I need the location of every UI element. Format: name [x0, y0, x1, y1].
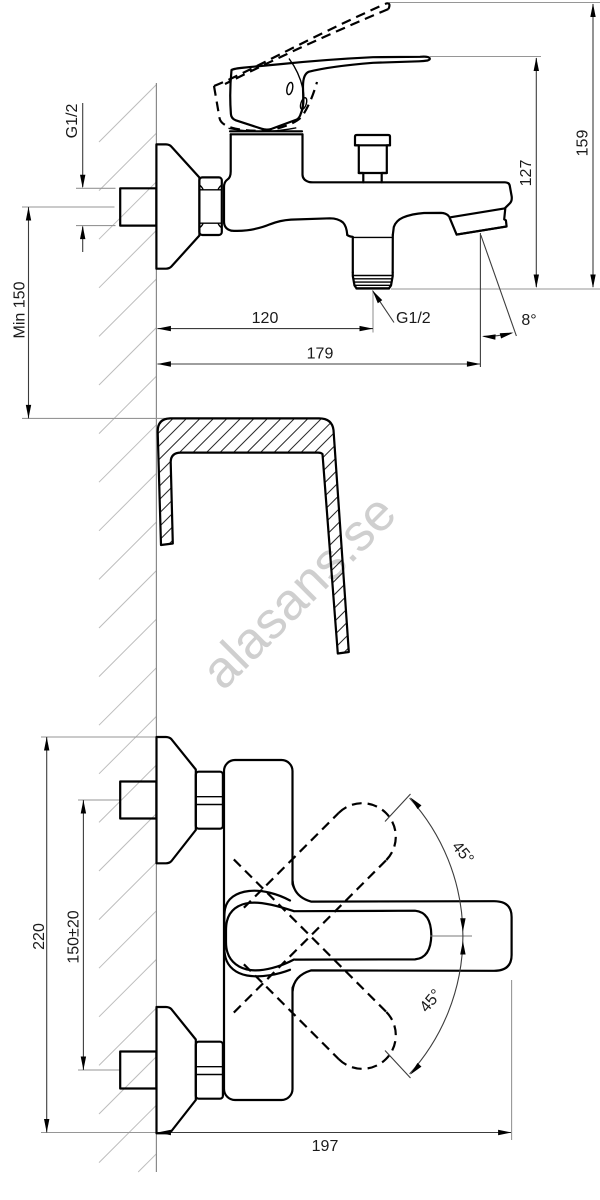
svg-text:179: 179 — [307, 346, 334, 363]
svg-text:G1/2: G1/2 — [396, 310, 431, 327]
svg-text:197: 197 — [312, 1138, 339, 1155]
svg-text:120: 120 — [252, 310, 279, 327]
svg-text:G1/2: G1/2 — [64, 104, 81, 139]
svg-text:8°: 8° — [521, 312, 536, 329]
svg-text:150±20: 150±20 — [66, 910, 83, 963]
svg-text:Min 150: Min 150 — [12, 281, 29, 338]
svg-text:127: 127 — [518, 160, 535, 187]
svg-text:159: 159 — [575, 130, 592, 157]
svg-text:220: 220 — [31, 923, 48, 950]
